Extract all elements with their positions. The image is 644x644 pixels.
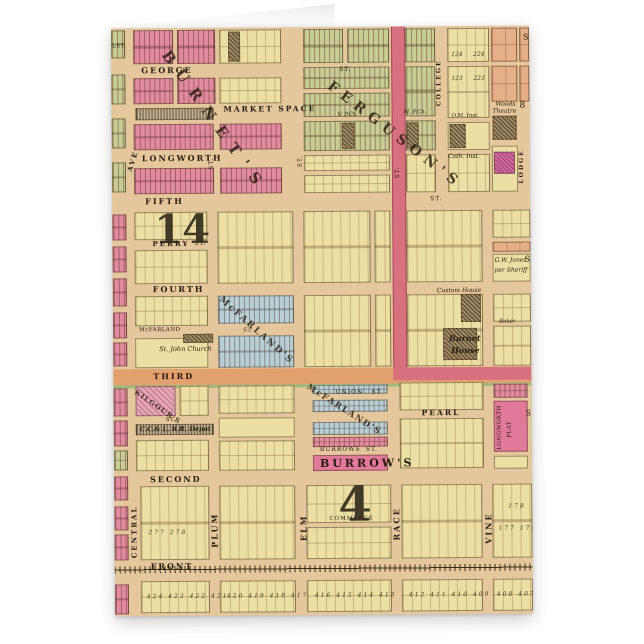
lot-numbers-row: 416 415 414 413 — [315, 592, 397, 599]
city-block — [112, 246, 126, 272]
institute-building — [450, 124, 466, 148]
edge-letter-s-1: S — [523, 34, 529, 42]
city-block — [406, 210, 483, 283]
lot-numbers-row: 420 419 418 417 — [227, 593, 309, 600]
city-block — [133, 78, 173, 104]
building-magenta-hatched — [494, 152, 515, 174]
card-back-fold — [131, 3, 341, 29]
landmark-label-depot: C.C.& L. R.R. Depot — [140, 426, 211, 433]
city-block — [218, 385, 294, 414]
city-block — [113, 312, 127, 338]
landmark-label-custom-house: Custom House — [437, 288, 482, 294]
street-label-college: COLLEGE — [436, 59, 442, 106]
city-block — [492, 210, 530, 238]
building-hatched — [228, 32, 240, 62]
city-block — [134, 168, 214, 195]
landmark-label-st-john-church: St. John Church — [159, 346, 211, 353]
street-label-vine: VINE — [484, 512, 492, 543]
landmark-label-woods-theatre-2: Theatre — [493, 109, 517, 115]
street-label-pearl: PEARL — [422, 409, 461, 417]
lot-numbers-row: 408 407 — [497, 592, 533, 598]
city-block — [303, 29, 343, 63]
street-label-union: UNION — [335, 390, 363, 396]
subdivision-label-longworth-plat-2: PLAT — [508, 421, 514, 438]
city-block — [405, 28, 435, 62]
street-label-market-space: MARKET SPACE — [223, 105, 316, 113]
landmark-label-v-pch: V. P.Ch. — [338, 113, 358, 119]
landmark-label-m-pch: M. P.Ch. — [404, 110, 427, 116]
lot-number: 178 — [508, 504, 525, 510]
city-block — [219, 485, 296, 560]
landmark-label-burnet-house-2: House — [451, 346, 479, 354]
city-block — [219, 417, 295, 438]
city-block — [114, 450, 128, 470]
city-block — [374, 211, 391, 283]
city-block — [219, 440, 295, 471]
city-block — [136, 440, 209, 472]
city-block — [399, 382, 483, 411]
city-block — [135, 250, 208, 285]
city-block — [304, 175, 390, 194]
city-block — [375, 295, 392, 367]
street-label-fifth: FIFTH — [145, 197, 184, 205]
landmark-label-gw-jones-2: per Sheriff — [495, 268, 528, 274]
city-block — [447, 66, 489, 118]
lot-numbers-row: 412 411 410 409 — [409, 592, 491, 599]
city-block — [177, 30, 215, 64]
city-block — [179, 386, 208, 416]
city-block — [134, 124, 214, 151]
city-block — [347, 29, 389, 63]
city-block — [304, 295, 372, 367]
city-block — [113, 278, 127, 306]
landmark-label-baker: Baker — [499, 320, 516, 326]
lot-numbers-row: 277 278 — [148, 530, 187, 536]
lot-number: 123 — [451, 76, 462, 82]
city-block — [493, 294, 531, 322]
city-block — [492, 484, 533, 558]
third-street-band-east — [393, 367, 531, 381]
city-block — [140, 486, 210, 560]
city-block — [114, 506, 128, 530]
city-block — [494, 456, 528, 469]
lot-number: 124 — [451, 52, 462, 58]
street-label-st-green-area: ST. — [339, 67, 351, 73]
city-block — [114, 420, 128, 446]
st-john-church-building — [183, 334, 213, 343]
city-block — [519, 66, 529, 102]
street-label-mcfarland: McFARLAND — [139, 328, 181, 334]
street-label-burrows-st-suffix: ST. — [366, 447, 378, 453]
street-label-st-red-street: ST. — [395, 166, 401, 178]
edge-letter-s-3: S — [526, 410, 532, 418]
city-block — [303, 211, 371, 283]
landmark-label-om-inst: O.M. Inst. — [452, 114, 480, 120]
street-label-plum: PLUM — [210, 513, 218, 548]
street-label-st-plum-upper: ST. — [209, 158, 215, 170]
lot-number: 224 — [473, 52, 484, 58]
street-label-burrows: BURROWS — [320, 447, 361, 453]
city-block — [493, 384, 527, 398]
lot-number: 223 — [473, 76, 484, 82]
city-block — [217, 211, 294, 284]
city-block — [111, 74, 125, 104]
city-block — [219, 77, 281, 103]
street-label-fourth: FOURTH — [153, 285, 205, 293]
church-building — [342, 123, 355, 149]
building-hatched — [461, 294, 481, 322]
city-block — [492, 242, 530, 252]
card-front-map: GEORGE MARKET SPACE LONGWORTH FIFTH ST. … — [111, 26, 533, 617]
landmark-label-cath-inst: Cath. Inst. — [448, 154, 480, 160]
street-label-race: RACE — [392, 507, 400, 540]
woods-theatre-building — [493, 116, 517, 140]
card-photo: GEORGE MARKET SPACE LONGWORTH FIFTH ST. … — [0, 0, 644, 644]
city-block — [401, 484, 483, 559]
lot-numbers-row: 424 423 422 421 — [147, 594, 229, 601]
street-label-lodge: LODGE — [519, 149, 525, 183]
city-block — [112, 118, 126, 148]
city-block — [113, 342, 127, 366]
street-label-fifth-st-suffix: ST. — [430, 196, 442, 202]
city-block — [113, 388, 127, 416]
city-block — [493, 326, 531, 366]
landmark-label-burnet-house-1: Burnet — [449, 334, 480, 342]
city-block — [112, 214, 126, 240]
street-label-st-elm-upper: ST. — [298, 155, 304, 167]
street-label-elm: ELM — [299, 515, 307, 542]
city-block — [112, 162, 126, 192]
city-block — [135, 296, 208, 327]
street-label-union-st-suffix: ST. — [371, 390, 383, 396]
lot-numbers-row: 177 178 — [498, 526, 533, 532]
street-label-second: SECOND — [150, 475, 202, 483]
street-label-central: CENTRAL — [130, 506, 137, 559]
street-label-front: FRONT — [151, 562, 194, 570]
ward-number-14: 14 — [154, 206, 210, 253]
subdivision-label-burrows: BURROW'S — [320, 457, 414, 469]
city-block — [114, 476, 128, 500]
city-block — [491, 66, 517, 102]
subdivision-label-longworth-plat-1: LONGWORTH — [498, 405, 504, 450]
block-number-8: 8 — [519, 102, 525, 111]
street-label-third: THIRD — [153, 372, 194, 380]
city-block — [304, 155, 390, 172]
city-block — [114, 534, 128, 560]
city-block — [491, 28, 517, 62]
landmark-label-gw-jones-1: G.W. Jones — [495, 258, 527, 264]
city-block — [115, 584, 129, 614]
ward-number-4: 4 — [338, 477, 372, 533]
edge-letter-s-2: S — [525, 256, 531, 264]
edge-label-ley: LEY. — [112, 44, 126, 50]
